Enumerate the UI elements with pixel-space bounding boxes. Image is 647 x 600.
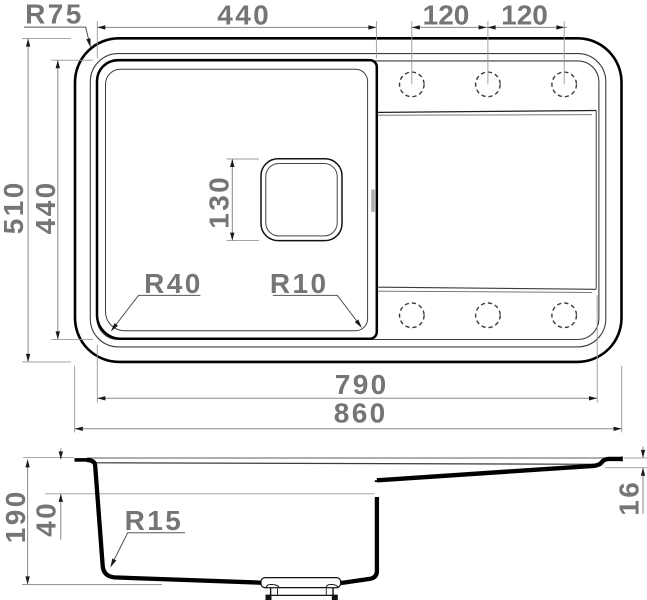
svg-text:790: 790 — [335, 369, 389, 400]
svg-text:16: 16 — [614, 480, 645, 516]
svg-text:40: 40 — [31, 501, 62, 537]
svg-text:860: 860 — [334, 398, 388, 429]
svg-text:510: 510 — [0, 180, 29, 234]
svg-text:440: 440 — [30, 180, 61, 234]
svg-text:R15: R15 — [125, 505, 184, 536]
svg-text:440: 440 — [217, 0, 271, 30]
svg-text:130: 130 — [203, 175, 234, 229]
svg-text:R40: R40 — [144, 268, 203, 299]
svg-text:190: 190 — [0, 489, 31, 543]
svg-text:R75: R75 — [25, 0, 84, 30]
svg-text:120: 120 — [423, 0, 470, 30]
svg-text:120: 120 — [501, 0, 548, 30]
svg-text:R10: R10 — [270, 268, 329, 299]
